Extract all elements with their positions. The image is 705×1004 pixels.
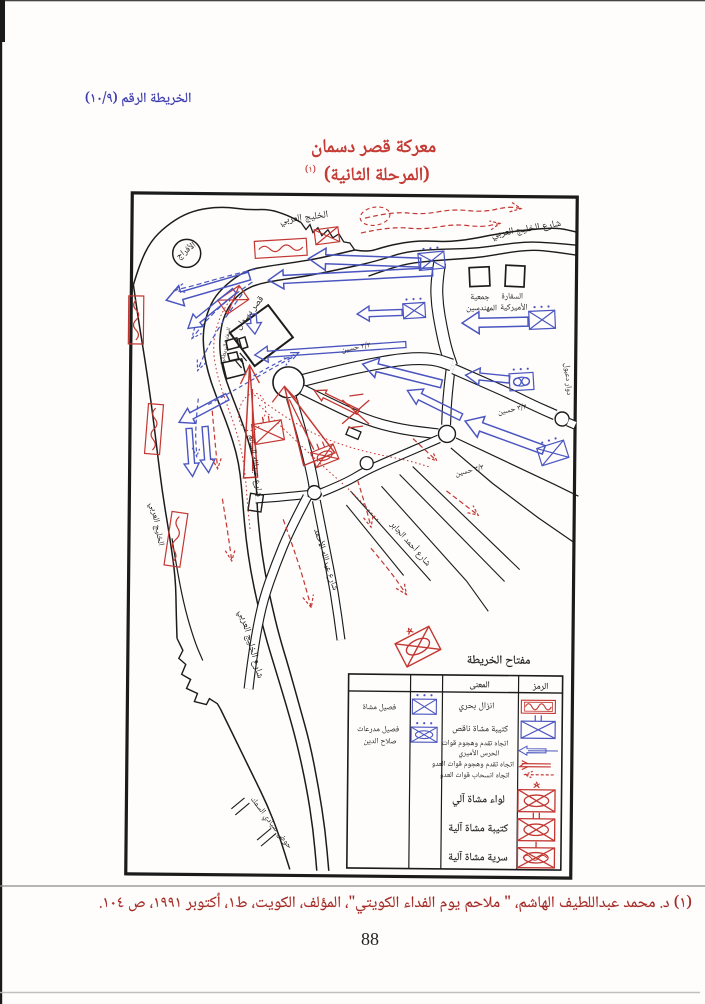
svg-text:88: 88	[361, 929, 379, 949]
